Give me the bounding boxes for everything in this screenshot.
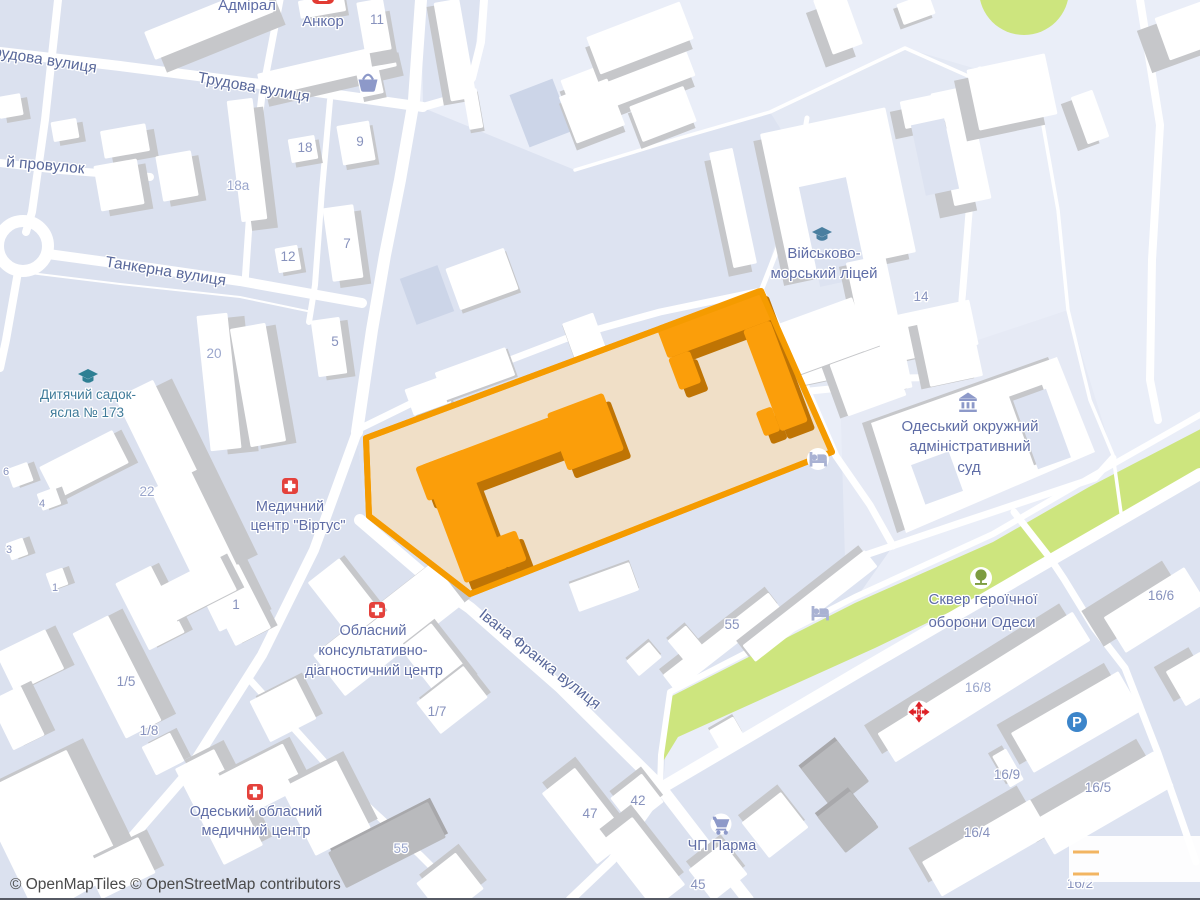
svg-text:16/6: 16/6 [1148,588,1174,603]
svg-text:© OpenMapTiles © OpenStreetMap: © OpenMapTiles © OpenStreetMap contribut… [10,876,341,893]
svg-text:1/8: 1/8 [140,723,159,738]
svg-text:Дитячий садок-: Дитячий садок- [40,387,136,402]
svg-text:5: 5 [331,334,339,349]
svg-text:20: 20 [206,346,221,361]
svg-text:16/4: 16/4 [964,825,991,840]
svg-text:1/7: 1/7 [428,704,447,719]
svg-text:4: 4 [39,498,45,510]
svg-text:Одеський окружний: Одеський окружний [901,418,1038,435]
svg-text:3: 3 [6,544,12,556]
svg-text:16/5: 16/5 [1085,780,1111,795]
svg-text:центр "Віртус": центр "Віртус" [250,518,345,534]
svg-text:Сквер героїчної: Сквер героїчної [929,591,1039,608]
svg-text:морський ліцей: морський ліцей [770,265,877,282]
svg-text:1: 1 [52,582,58,594]
svg-text:16/9: 16/9 [994,767,1020,782]
svg-text:18: 18 [297,140,312,155]
svg-text:9: 9 [356,134,364,149]
svg-text:7: 7 [343,236,351,251]
svg-text:Анкор: Анкор [302,13,344,30]
svg-text:11: 11 [370,12,384,27]
svg-text:42: 42 [630,793,645,808]
svg-text:45: 45 [690,877,705,892]
svg-text:22: 22 [139,484,154,499]
svg-text:P: P [1072,715,1082,731]
svg-text:оборони Одеси: оборони Одеси [928,614,1035,631]
svg-text:консультативно-: консультативно- [318,643,427,659]
svg-text:адміністративний: адміністративний [909,438,1030,455]
svg-text:Медичний: Медичний [256,499,324,515]
svg-text:47: 47 [582,806,597,821]
svg-text:55: 55 [724,617,739,632]
svg-text:Військово-: Військово- [787,245,860,262]
svg-text:суд: суд [957,459,981,476]
svg-text:Одеський обласний: Одеський обласний [190,804,323,820]
svg-text:55: 55 [393,841,408,856]
svg-text:12: 12 [280,249,295,264]
svg-text:діагностичний центр: діагностичний центр [305,663,443,679]
svg-text:ясла № 173: ясла № 173 [50,405,124,420]
svg-text:14: 14 [913,289,929,304]
svg-text:ЧП Парма: ЧП Парма [688,838,758,854]
svg-text:16/8: 16/8 [965,680,991,695]
svg-text:Обласний: Обласний [340,623,407,639]
svg-text:1: 1 [232,597,240,612]
svg-text:1/5: 1/5 [117,674,136,689]
svg-text:6: 6 [3,466,9,478]
svg-text:медичний центр: медичний центр [202,823,311,839]
svg-text:18а: 18а [227,178,250,193]
svg-text:Адмірал: Адмірал [218,0,276,14]
